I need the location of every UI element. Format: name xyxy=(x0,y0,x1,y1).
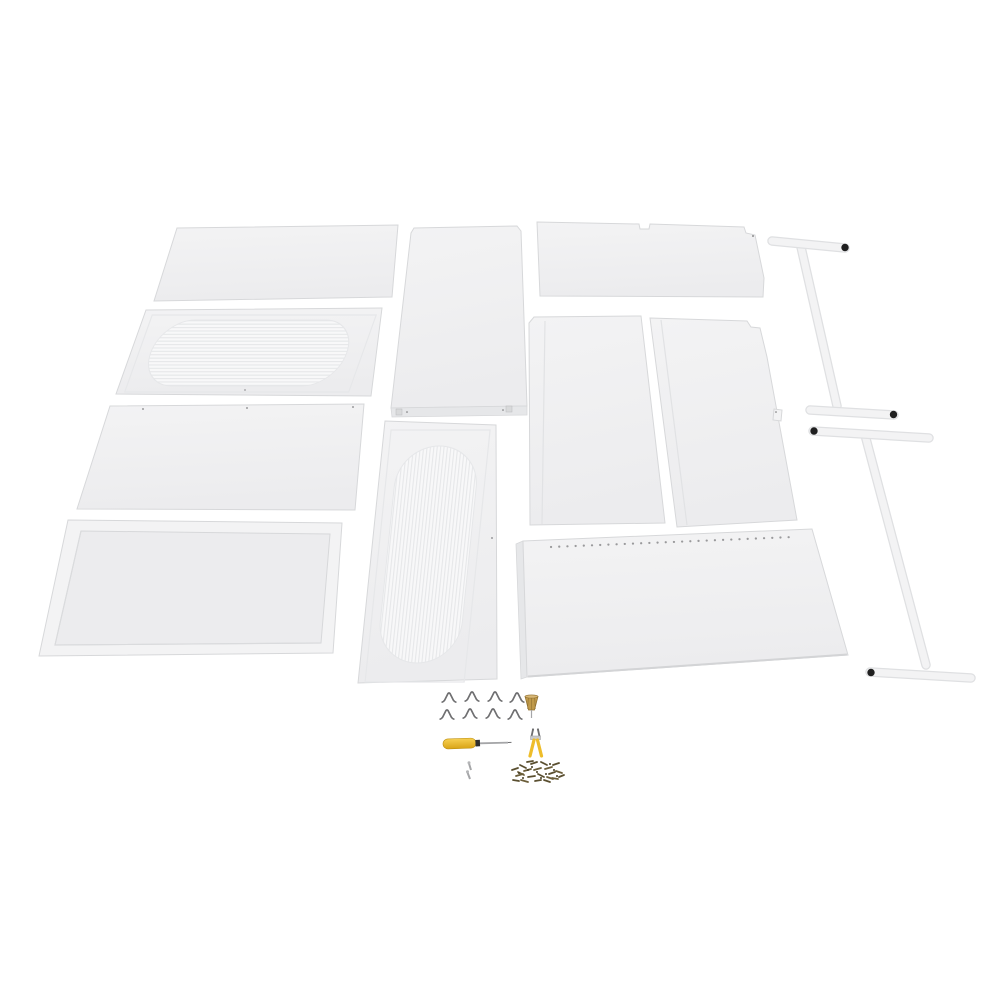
product-photo-canvas xyxy=(0,0,1000,1000)
panel-face xyxy=(529,316,665,525)
screw-hole xyxy=(406,411,408,413)
vertical-vent-panel xyxy=(358,421,497,683)
panel-face xyxy=(523,529,848,677)
black-tube-end-cap xyxy=(841,244,848,251)
panel-face xyxy=(650,318,797,527)
shelf-clip xyxy=(508,710,522,719)
corner-bracket xyxy=(396,409,402,415)
screw-hole xyxy=(502,409,504,411)
screw-head xyxy=(468,761,471,764)
flat-side-panel xyxy=(77,404,364,510)
shelf-clip xyxy=(488,692,502,701)
corner-bracket xyxy=(506,406,512,412)
screwdriver-shaft xyxy=(480,742,508,743)
shelf-clips xyxy=(440,692,524,719)
small-assembly-tool xyxy=(530,728,542,756)
tall-flat-panel xyxy=(391,226,527,417)
screw-head xyxy=(466,770,469,773)
louvered-vent-oval xyxy=(139,320,359,386)
back-panel-left xyxy=(529,316,665,525)
screw-pile xyxy=(512,761,564,782)
shelf-clip xyxy=(486,709,500,718)
screw-hole xyxy=(352,406,354,408)
screw-hole xyxy=(244,389,246,391)
back-panel-right xyxy=(650,318,797,527)
screw-hole xyxy=(142,408,144,410)
leg-crossbar xyxy=(813,431,929,438)
screw-hole xyxy=(775,411,777,413)
shelf-clip xyxy=(465,692,479,701)
perforated-base-panel xyxy=(516,529,848,679)
black-tube-end-cap xyxy=(890,411,897,418)
panel-face xyxy=(391,226,527,408)
t-shaped-tube-leg-1 xyxy=(772,241,897,418)
screwdriver xyxy=(443,737,512,749)
small-screws xyxy=(466,761,471,779)
screw-hole xyxy=(246,407,248,409)
leg-post xyxy=(801,247,837,406)
tool-handle xyxy=(530,740,534,756)
screw-hole xyxy=(752,235,754,237)
shelf-clip xyxy=(442,693,456,702)
panel-face xyxy=(154,225,398,301)
horizontal-vent-panel xyxy=(116,308,382,396)
tray-bottom xyxy=(55,531,330,645)
parts-layout xyxy=(0,0,1000,1000)
shelf-clip xyxy=(463,709,477,718)
shelf-clip xyxy=(440,710,454,719)
black-tube-end-cap xyxy=(810,427,817,434)
screw-hole xyxy=(491,537,493,539)
screwdriver-handle xyxy=(443,738,476,749)
screwdriver-ferrule xyxy=(475,740,480,747)
small-screw xyxy=(468,773,471,780)
notched-shelf-panel xyxy=(537,222,764,297)
small-screw xyxy=(469,764,471,771)
tool-jaw-tip xyxy=(537,728,539,730)
panel-face xyxy=(537,222,764,297)
tool-jaw-tip xyxy=(532,728,534,730)
side-tab xyxy=(773,409,782,421)
leg-crossbar xyxy=(772,241,845,248)
panel-face xyxy=(77,404,364,510)
brass-anchor-bit xyxy=(525,695,538,718)
tool-handle xyxy=(538,740,542,756)
leg-post xyxy=(865,435,926,665)
black-tube-end-cap xyxy=(867,669,874,676)
brass-top xyxy=(525,695,538,698)
tool-pivot xyxy=(531,736,541,740)
lipped-tray-shelf xyxy=(39,520,342,656)
flat-top-panel xyxy=(154,225,398,301)
shelf-clip xyxy=(510,693,524,702)
leg-foot-bar xyxy=(810,410,894,415)
